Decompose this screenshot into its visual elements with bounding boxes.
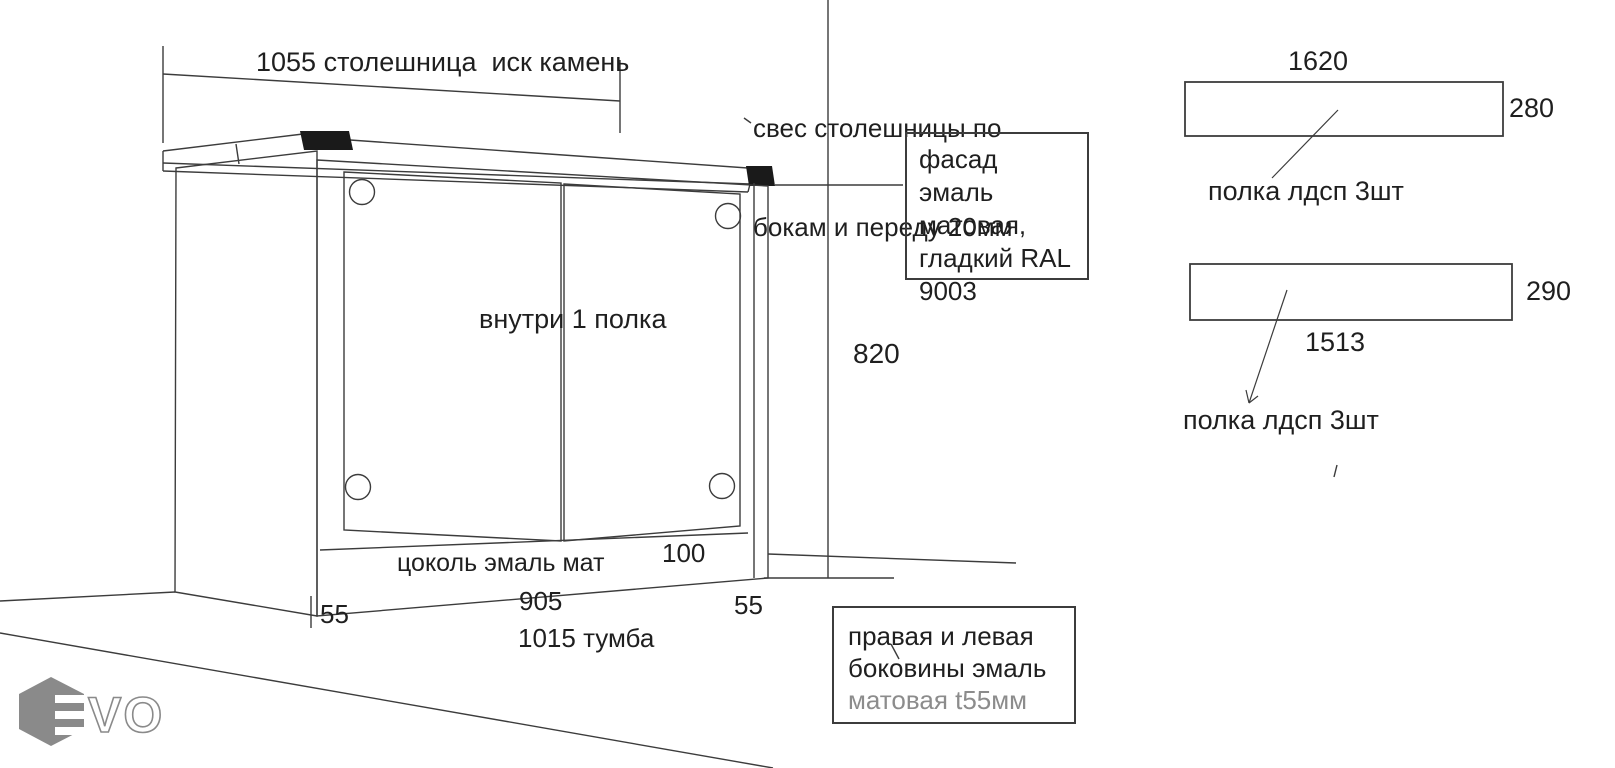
shelf1-width-label: 1620 — [1288, 46, 1348, 77]
total-width-label: 1015 тумба — [518, 623, 654, 653]
shelf2-depth-label: 290 — [1526, 276, 1571, 307]
shelf1-leader — [1272, 110, 1338, 178]
door-handle — [716, 204, 741, 229]
shelf1-rect — [1185, 82, 1503, 136]
facade-note-line2: матовая, — [919, 209, 1075, 242]
door-handle — [350, 180, 375, 205]
floor-line-cabinet-base — [0, 592, 175, 601]
dim-55-left-label: 55 — [320, 599, 349, 629]
shelf2-label: полка лдсп 3шт — [1183, 405, 1379, 436]
facade-note-line3: гладкий RAL — [919, 242, 1075, 275]
sides-note-box: правая и левая боковины эмаль матовая t5… — [832, 606, 1076, 724]
logo-letters: VO — [88, 687, 164, 743]
countertop — [163, 131, 775, 192]
inside-label: внутри 1 полка — [479, 304, 666, 335]
door-handle — [710, 474, 735, 499]
shelf2-width-label: 1513 — [1305, 327, 1365, 358]
shelf1-label: полка лдсп 3шт — [1208, 176, 1404, 207]
dim-100-label: 100 — [662, 538, 705, 568]
sides-note-line3: матовая t55мм — [848, 684, 1060, 716]
evo-logo: VO — [0, 660, 220, 768]
dim-55-right-label: 55 — [734, 590, 763, 620]
sides-note-line2: боковины эмаль — [848, 652, 1060, 684]
facade-note-line4: 9003 — [919, 275, 1075, 308]
shelf1-depth-label: 280 — [1509, 93, 1554, 124]
dim-820-label: 820 — [853, 338, 900, 370]
door-handle — [346, 475, 371, 500]
facade-note-line1: фасад эмаль — [919, 143, 1075, 209]
floor-line-right — [768, 554, 1016, 563]
corner-cap-left — [300, 131, 353, 150]
stray-tick-right — [1334, 465, 1337, 477]
countertop-dim-label: 1055 столешница иск камень — [256, 47, 629, 78]
left-side-panel — [175, 151, 317, 616]
right-door — [564, 184, 740, 541]
facade-note-box: фасад эмаль матовая, гладкий RAL 9003 — [905, 132, 1089, 280]
left-door — [344, 172, 561, 541]
shelf2-rect — [1190, 264, 1512, 320]
dim-905-label: 905 — [519, 586, 562, 616]
shelf1-diagram — [1185, 82, 1503, 178]
plinth-label: цоколь эмаль мат — [397, 549, 604, 578]
stray-tick-top — [744, 118, 751, 123]
sides-note-line1: правая и левая — [848, 620, 1060, 652]
logo-e-stripes — [55, 695, 86, 735]
shelf2-arrow — [1246, 290, 1287, 403]
